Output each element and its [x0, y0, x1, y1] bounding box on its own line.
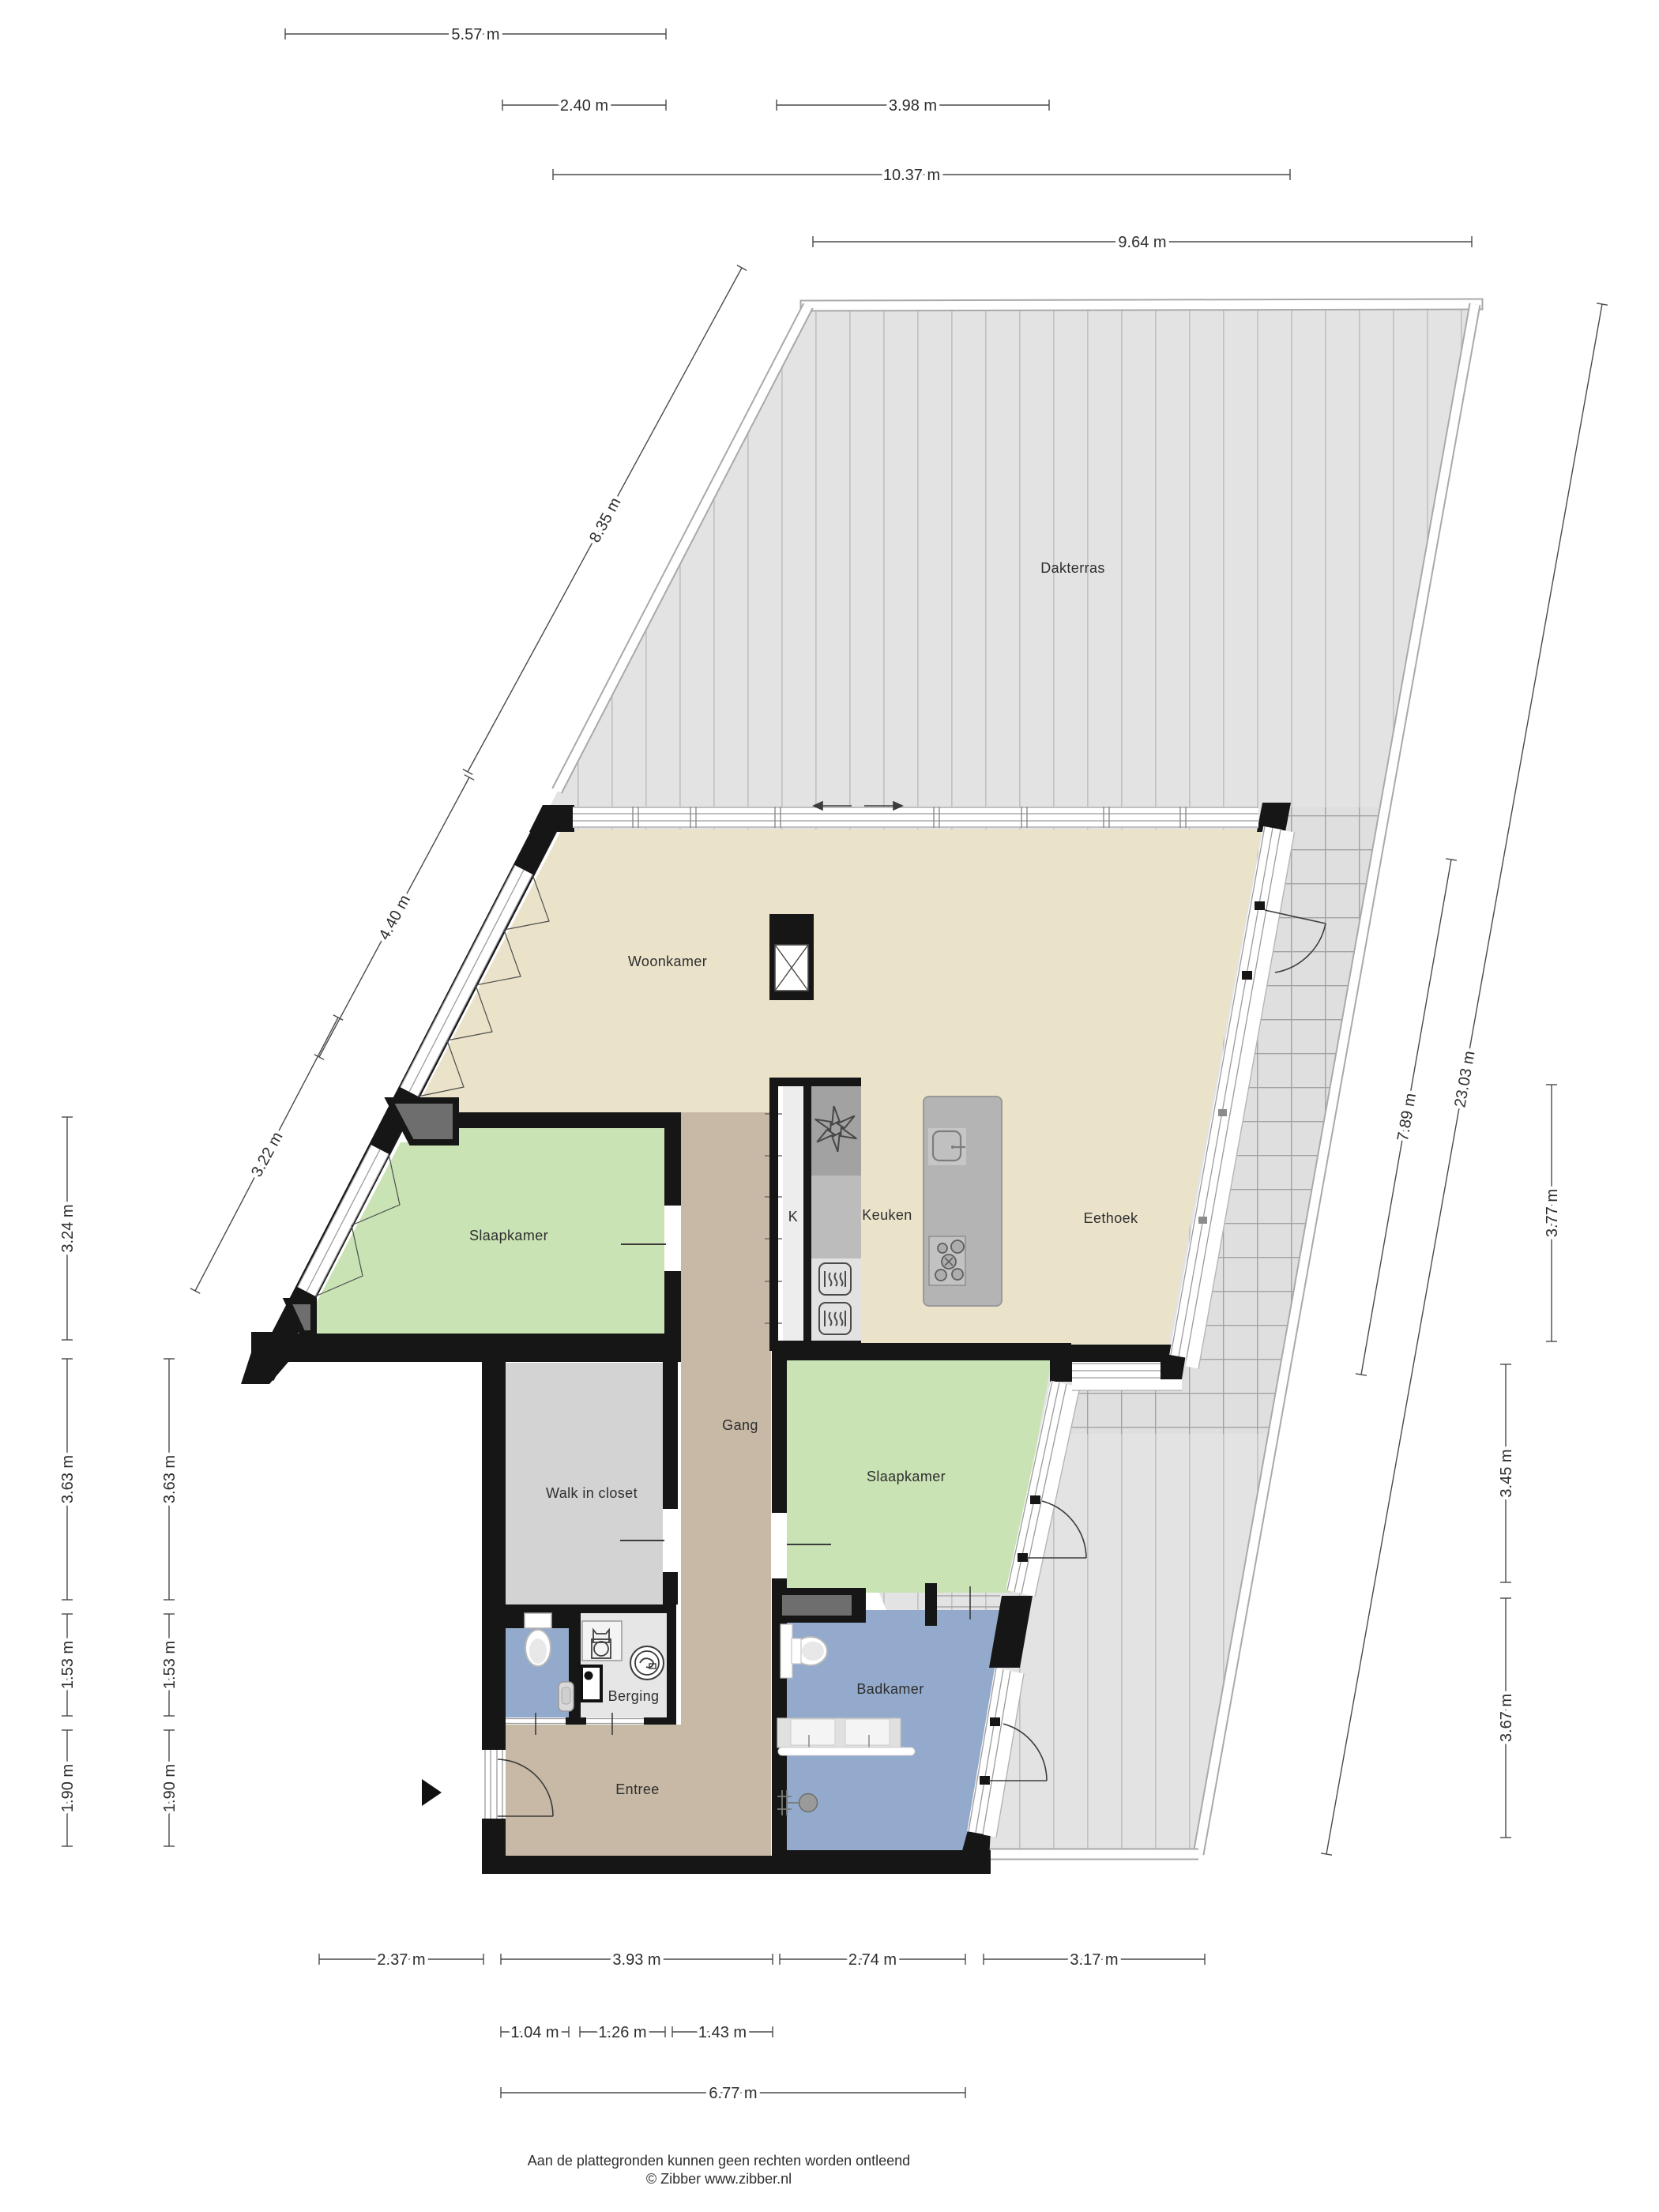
svg-text:Berging: Berging	[608, 1688, 660, 1704]
svg-text:Walk in closet: Walk in closet	[546, 1485, 638, 1501]
svg-text:Dakterras: Dakterras	[1040, 560, 1105, 576]
svg-text:1.26 m: 1.26 m	[598, 2024, 646, 2041]
svg-text:1.43 m: 1.43 m	[698, 2024, 747, 2041]
svg-text:3.67 m: 3.67 m	[1498, 1694, 1515, 1742]
svg-text:1.90 m: 1.90 m	[161, 1764, 179, 1812]
svg-text:K: K	[788, 1209, 798, 1224]
svg-text:3.63 m: 3.63 m	[161, 1455, 179, 1503]
svg-text:3.63 m: 3.63 m	[59, 1455, 77, 1503]
svg-text:Slaapkamer: Slaapkamer	[469, 1228, 548, 1243]
svg-text:3.98 m: 3.98 m	[889, 97, 937, 115]
svg-text:6.77 m: 6.77 m	[709, 2085, 757, 2102]
svg-text:Woonkamer: Woonkamer	[628, 954, 707, 969]
svg-text:3.24 m: 3.24 m	[59, 1204, 77, 1252]
svg-text:2.74 m: 2.74 m	[848, 1951, 897, 1969]
svg-text:1.04 m: 1.04 m	[510, 2024, 559, 2041]
svg-text:Slaapkamer: Slaapkamer	[867, 1469, 946, 1484]
svg-text:10.37 m: 10.37 m	[883, 167, 940, 184]
svg-text:3.45 m: 3.45 m	[1498, 1449, 1515, 1497]
svg-text:2.37 m: 2.37 m	[377, 1951, 425, 1969]
svg-text:Entree: Entree	[615, 1781, 659, 1797]
svg-text:3.17 m: 3.17 m	[1070, 1951, 1118, 1969]
svg-text:1.53 m: 1.53 m	[59, 1641, 77, 1689]
svg-text:5.57 m: 5.57 m	[451, 26, 499, 43]
svg-text:1.53 m: 1.53 m	[161, 1641, 179, 1689]
svg-text:3.93 m: 3.93 m	[612, 1951, 660, 1969]
svg-text:© Zibber www.zibber.nl: © Zibber www.zibber.nl	[646, 2171, 792, 2187]
svg-text:Keuken: Keuken	[862, 1207, 912, 1223]
svg-text:Gang: Gang	[722, 1417, 758, 1433]
svg-text:Eethoek: Eethoek	[1084, 1210, 1138, 1226]
svg-text:Badkamer: Badkamer	[856, 1681, 924, 1697]
svg-text:3.77 m: 3.77 m	[1544, 1189, 1561, 1237]
svg-text:1.90 m: 1.90 m	[59, 1764, 77, 1812]
svg-text:Aan de plattegronden kunnen ge: Aan de plattegronden kunnen geen rechten…	[528, 2153, 910, 2169]
svg-text:9.64 m: 9.64 m	[1118, 234, 1166, 251]
svg-text:2.40 m: 2.40 m	[560, 97, 608, 115]
